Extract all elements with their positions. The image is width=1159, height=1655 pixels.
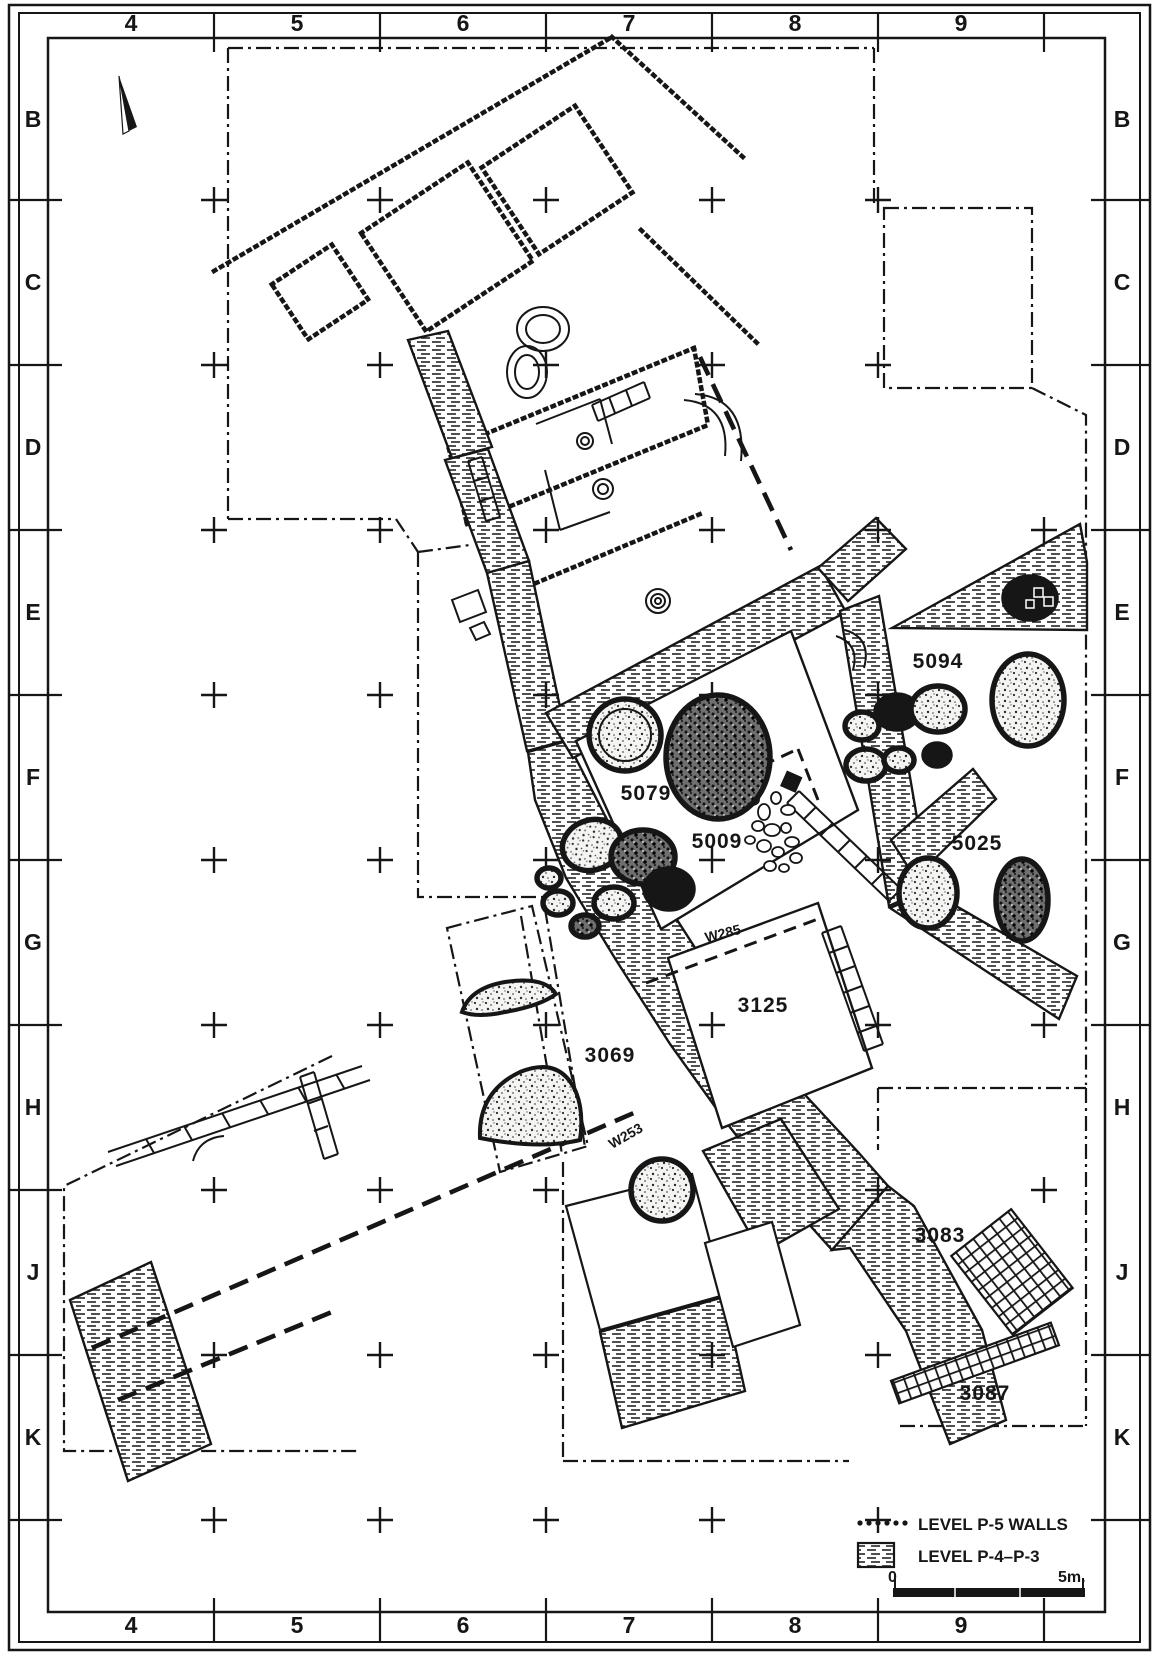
grid-row-right: J — [1116, 1259, 1129, 1285]
scale-bar: 0 5m. — [888, 1569, 1086, 1597]
grid-col-bottom: 7 — [623, 1612, 636, 1638]
locus-label-5079: 5079 — [621, 782, 672, 805]
grid-col-bottom: 9 — [955, 1612, 968, 1638]
legend-p5-label: LEVEL P-5 WALLS — [918, 1515, 1068, 1534]
grid-col-top: 4 — [125, 10, 138, 36]
grid-col-bottom: 8 — [789, 1612, 802, 1638]
p4-p3-swatch-icon — [858, 1543, 894, 1567]
grid-row-left: D — [25, 434, 42, 460]
grid-row-right: C — [1114, 269, 1131, 295]
grid-row-right: G — [1113, 929, 1131, 955]
grid-row-right: F — [1115, 764, 1129, 790]
grid-row-left: K — [25, 1424, 42, 1450]
locus-label-3125: 3125 — [738, 994, 789, 1017]
locus-label-5094: 5094 — [913, 650, 964, 673]
wall-label-w253: W253 — [606, 1119, 646, 1151]
grid-row-right: B — [1114, 106, 1131, 132]
grid-row-left: E — [25, 599, 40, 625]
grid-row-left: H — [25, 1094, 42, 1120]
locus-label-3069: 3069 — [585, 1044, 636, 1067]
grid-row-right: H — [1114, 1094, 1131, 1120]
site-plan-drawing: 4 5 6 7 8 9 4 5 6 7 8 9 B C D E F G H J … — [0, 0, 1159, 1655]
grid-col-bottom: 5 — [291, 1612, 304, 1638]
grid-row-right: D — [1114, 434, 1131, 460]
grid-col-bottom: 4 — [125, 1612, 138, 1638]
grid-row-right: E — [1114, 599, 1129, 625]
site-plan-page: 4 5 6 7 8 9 4 5 6 7 8 9 B C D E F G H J … — [0, 0, 1159, 1655]
grid-row-left: F — [26, 764, 40, 790]
locus-label-3087: 3087 — [960, 1382, 1011, 1405]
locus-label-5009: 5009 — [692, 830, 743, 853]
grid-col-top: 8 — [789, 10, 802, 36]
scale-end-label: 5m. — [1058, 1569, 1086, 1586]
grid-row-right: K — [1114, 1424, 1131, 1450]
north-arrow-icon — [119, 76, 137, 134]
grid-row-left: C — [25, 269, 42, 295]
map-legend: LEVEL P-5 WALLS LEVEL P-4–P-3 — [857, 1515, 1067, 1567]
grid-col-top: 9 — [955, 10, 968, 36]
grid-col-top: 5 — [291, 10, 304, 36]
grid-col-top: 6 — [457, 10, 470, 36]
grid-col-bottom: 6 — [457, 1612, 470, 1638]
grid-row-left: B — [25, 106, 42, 132]
grid-row-left: G — [24, 929, 42, 955]
grid-row-left: J — [27, 1259, 40, 1285]
grid-col-top: 7 — [623, 10, 636, 36]
legend-p43-label: LEVEL P-4–P-3 — [918, 1547, 1040, 1566]
locus-label-5025: 5025 — [952, 832, 1003, 855]
locus-label-3083: 3083 — [915, 1224, 966, 1247]
